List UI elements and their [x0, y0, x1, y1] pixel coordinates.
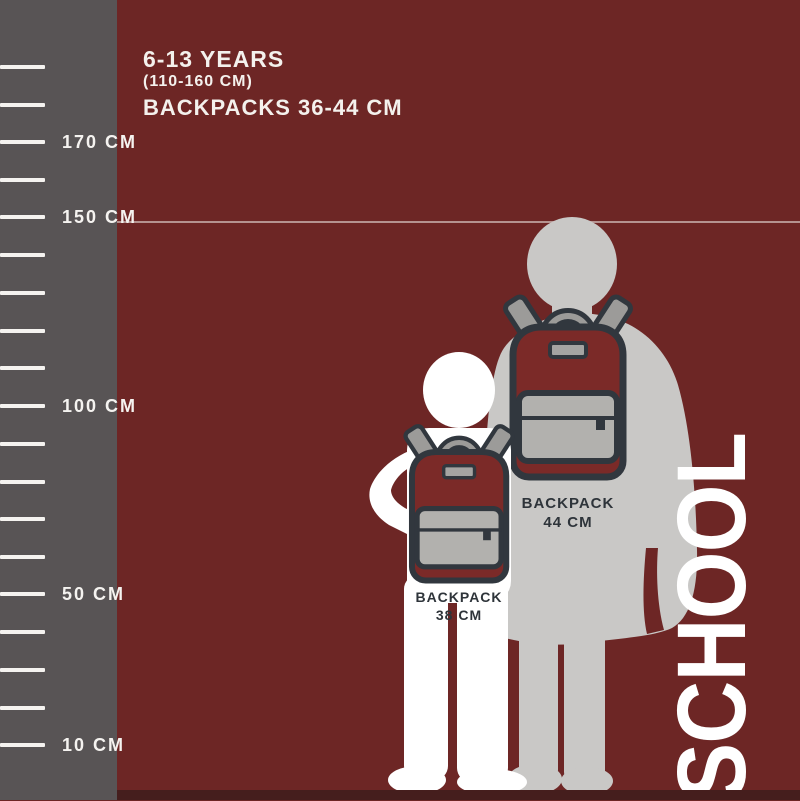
ruler-sidebar: 170 CM 150 CM 100 CM 50 CM 10 CM: [0, 0, 117, 800]
backpack-label-large-name: BACKPACK: [493, 494, 643, 513]
ruler-tick: [0, 592, 45, 596]
ruler-tick: [0, 480, 45, 484]
ruler-tick: [0, 329, 45, 333]
header-text-block: 6-13 YEARS (110-160 CM) BACKPACKS 36-44 …: [143, 46, 403, 120]
size-guide-infographic: { "header": { "age_range": "6-13 YEARS",…: [0, 0, 800, 800]
ruler-tick: [0, 630, 45, 634]
ruler-tick: [0, 178, 45, 182]
ruler-tick: [0, 706, 45, 710]
ruler-tick: [0, 442, 45, 446]
backpack-range-text: BACKPACKS 36-44 CM: [143, 95, 403, 120]
ruler-label-150: 150 CM: [62, 206, 172, 228]
ruler-tick: [0, 743, 45, 747]
backpack-illustration-large: [503, 295, 633, 477]
ruler-tick: [0, 366, 45, 370]
ruler-tick: [0, 253, 45, 257]
ruler-tick: [0, 215, 45, 219]
backpack-label-small-name: BACKPACK: [389, 588, 529, 606]
ruler-tick: [0, 291, 45, 295]
ruler-tick: [0, 65, 45, 69]
age-range-text: 6-13 YEARS: [143, 46, 403, 72]
backpack-label-large: BACKPACK 44 CM: [493, 494, 643, 532]
height-range-text: (110-160 CM): [143, 73, 403, 91]
ruler-tick: [0, 103, 45, 107]
ruler-label-10: 10 CM: [62, 734, 172, 756]
ruler-label-170: 170 CM: [62, 131, 172, 153]
ruler-label-100: 100 CM: [62, 395, 172, 417]
backpack-label-small-size: 38 CM: [389, 606, 529, 624]
backpack-label-large-size: 44 CM: [493, 513, 643, 532]
school-wordmark: SCHOOL: [656, 433, 768, 801]
ruler-tick: [0, 555, 45, 559]
ground-strip: [117, 790, 800, 800]
ruler-tick: [0, 668, 45, 672]
ruler-tick: [0, 140, 45, 144]
backpack-label-small: BACKPACK 38 CM: [389, 588, 529, 624]
ruler-tick: [0, 404, 45, 408]
ruler-label-50: 50 CM: [62, 583, 172, 605]
ruler-tick: [0, 517, 45, 521]
